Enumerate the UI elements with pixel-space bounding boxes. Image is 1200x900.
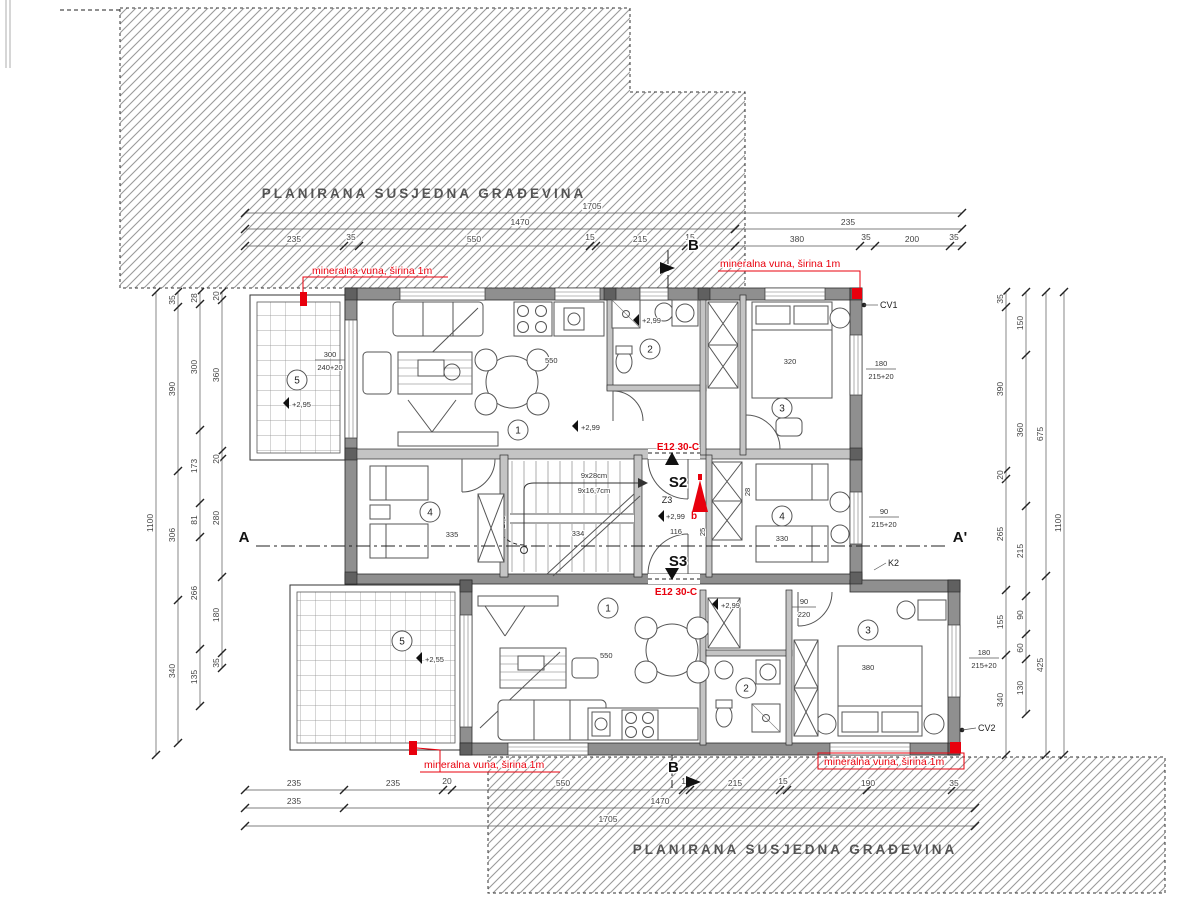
dim-label: 155: [995, 615, 1005, 629]
dim-label: 173: [189, 459, 199, 473]
window-dim: 215+20: [871, 520, 896, 529]
dim-label: 550: [556, 778, 570, 788]
window-dim: 215+20: [868, 372, 893, 381]
dim-label: 35: [211, 658, 221, 668]
terrace-lower: [290, 585, 465, 750]
label-s2: S2: [669, 474, 687, 491]
dim-label: 215: [728, 778, 742, 788]
dim-label: 15: [778, 776, 788, 786]
dim-label: 266: [189, 586, 199, 600]
dim-label: 235: [287, 234, 301, 244]
dim-label: 380: [790, 234, 804, 244]
room-circle-l2: 2: [736, 678, 756, 698]
section-a-right: A': [953, 529, 967, 546]
window-dim-mid-east: 90215+20: [869, 507, 899, 529]
dim-label: 28: [189, 293, 199, 303]
room-number: 2: [743, 684, 749, 695]
room-number: 5: [399, 637, 405, 648]
dim-label: 390: [995, 382, 1005, 396]
room-number: 4: [779, 512, 785, 523]
window-kitchen-upper: [555, 288, 600, 300]
dim-label: 60: [1015, 643, 1025, 653]
property-lines: [6, 0, 122, 68]
dim-label: 81: [189, 515, 199, 525]
neighbor-top-label: PLANIRANA SUSJEDNA GRAĐEVINA: [262, 186, 587, 201]
label-s3: S3: [669, 553, 687, 570]
e12-label-bottom: E12 30-C: [655, 587, 697, 598]
window-dim: 90: [880, 507, 888, 516]
room-number: 1: [605, 604, 611, 615]
dim-label: 130: [1015, 681, 1025, 695]
mineral-note-tr: mineralna vuna, širina 1m: [720, 258, 840, 270]
room-number: 1: [515, 426, 521, 437]
room-circle-u1: 1: [508, 420, 528, 440]
floor-plan-svg: PLANIRANA SUSJEDNA GRAĐEVINA PLANIRANA S…: [0, 0, 1200, 900]
dim-label: 1705: [583, 201, 602, 211]
dim-label: 360: [211, 368, 221, 382]
room-circle-l1: 1: [598, 598, 618, 618]
dim-label: 1470: [651, 796, 670, 806]
e12-label-top: E12 30-C: [657, 442, 699, 453]
level-terrace-low: +2,55: [425, 655, 444, 664]
ref-label: K2: [888, 558, 899, 568]
dim-label: 235: [287, 796, 301, 806]
dim-label: 235: [287, 778, 301, 788]
neighbor-bottom-label: PLANIRANA SUSJEDNA GRAĐEVINA: [633, 842, 958, 857]
level-core: +2,99: [666, 512, 685, 521]
dim-label: 300: [189, 360, 199, 374]
dim-label: 180: [211, 608, 221, 622]
dim-label: 200: [905, 234, 919, 244]
dim-label: 35: [346, 232, 356, 242]
window-dim: 90: [800, 597, 808, 606]
window-living-lower: [508, 743, 588, 755]
core-dim-116: 116: [670, 527, 682, 536]
dim-label: 280: [211, 511, 221, 525]
dim-bed4l: 335: [446, 530, 459, 539]
floor-plan-page: PLANIRANA SUSJEDNA GRAĐEVINA PLANIRANA S…: [0, 0, 1200, 900]
dim-label: 340: [995, 693, 1005, 707]
dim-label: 15: [585, 232, 595, 242]
ref-cv2: CV2: [960, 723, 996, 733]
dim-label: 360: [1015, 423, 1025, 437]
neighbor-building-bottom: PLANIRANA SUSJEDNA GRAĐEVINA: [488, 757, 1165, 893]
window-dim: 240+20: [317, 363, 342, 372]
level-terrace-up: +2,95: [292, 400, 311, 409]
dim-living-up: 550: [545, 356, 558, 365]
shaft-x-core: [712, 462, 742, 540]
ref-k2: K2: [874, 558, 899, 570]
rug-tv-upper: [398, 352, 472, 394]
window-dim-lower-east: 180215+20: [969, 648, 999, 670]
dim-label: 35: [995, 294, 1005, 304]
dim-label: 425: [1035, 658, 1045, 672]
kitchen-lower: [588, 708, 698, 740]
dim-label: 20: [442, 776, 452, 786]
dim-label: 390: [167, 382, 177, 396]
dim-label: 135: [189, 670, 199, 684]
room-circle-u4r: 4: [772, 506, 792, 526]
window-dim: 300: [324, 350, 337, 359]
dim-label: 265: [995, 527, 1005, 541]
dim-label: 215: [1015, 544, 1025, 558]
dim-label: 306: [167, 528, 177, 542]
dim-label: 20: [211, 454, 221, 464]
dim-bed-low: 380: [862, 663, 875, 672]
ref-label: CV2: [978, 723, 996, 733]
section-b-top: B: [688, 237, 699, 254]
window-bedroom3-upper: [765, 288, 825, 300]
dim-label: 35: [167, 295, 177, 305]
extinguisher-label: b: [691, 511, 697, 522]
window-dim: 180: [875, 359, 888, 368]
window-dim: 180: [978, 648, 991, 657]
dim-label: 150: [1015, 316, 1025, 330]
mineral-note-bl: mineralna vuna, širina 1m: [424, 759, 544, 771]
dim-label: 35: [949, 232, 959, 242]
dim-label: 190: [861, 778, 875, 788]
mineral-note-br: mineralna vuna, širina 1m: [824, 756, 944, 768]
core-dim-25: 25: [698, 528, 707, 536]
room-circle-u4l: 4: [420, 502, 440, 522]
stair-note-1: 9x28cm: [581, 471, 607, 480]
mineral-note-tl: mineralna vuna, širina 1m: [312, 265, 432, 277]
dim-label: 1100: [1053, 514, 1063, 533]
room-circle-u5: 5: [287, 370, 307, 390]
dim-label: 215: [633, 234, 647, 244]
dim-label: 235: [386, 778, 400, 788]
rug-tv-lower: [500, 648, 566, 688]
dining-table-upper: [475, 349, 549, 415]
dim-bed4r: 330: [776, 534, 789, 543]
dim-label: 1470: [511, 217, 530, 227]
level-bath-up: +2,99: [642, 316, 661, 325]
dim-label: 35: [861, 232, 871, 242]
room-number: 4: [427, 508, 433, 519]
terrace-door-upper: [345, 320, 357, 438]
window-living-upper: [400, 288, 485, 300]
level-hall-low: +2,99: [721, 601, 740, 610]
kitchen-upper: [514, 302, 604, 336]
level-living-up: +2,99: [581, 423, 600, 432]
window-bedroom4-east: [850, 492, 862, 544]
room-number: 3: [779, 404, 785, 415]
dim-label: 1100: [145, 514, 155, 533]
room-circle-u3: 3: [772, 398, 792, 418]
room-circle-l3: 3: [858, 620, 878, 640]
dining-table-lower: [635, 617, 709, 683]
terrace-door-lower: [460, 615, 472, 727]
window-dim: 215+20: [971, 661, 996, 670]
dim-living-low: 550: [600, 651, 613, 660]
core-dim-28: 28: [743, 488, 752, 496]
dim-label: 675: [1035, 427, 1045, 441]
stair-note-2: 9x16,7cm: [578, 486, 611, 495]
dim-label: 235: [841, 217, 855, 227]
window-bedroom3-lower-east: [948, 625, 960, 697]
dim-label: 20: [211, 291, 221, 301]
section-a-left: A: [239, 529, 250, 546]
ref-cv1: CV1: [862, 300, 898, 310]
dim-bed-up: 320: [784, 357, 797, 366]
room-circle-u2: 2: [640, 339, 660, 359]
room-circle-l5: 5: [392, 631, 412, 651]
dim-label: 340: [167, 664, 177, 678]
shaft-x-upper: [708, 302, 738, 388]
ref-label: CV1: [880, 300, 898, 310]
room-number: 5: [294, 376, 300, 387]
dim-label: 20: [995, 470, 1005, 480]
label-z3: Z3: [662, 495, 673, 505]
window-dim-upper-east: 180215+20: [866, 359, 896, 381]
room-number: 3: [865, 626, 871, 637]
section-b-bottom: B: [668, 759, 679, 776]
dim-label: 1705: [599, 814, 618, 824]
dim-label: 550: [467, 234, 481, 244]
room-number: 2: [647, 345, 653, 356]
dim-label: 35: [949, 778, 959, 788]
window-bedroom3-upper-east: [850, 335, 862, 395]
stair-dim-334: 334: [572, 529, 585, 538]
window-dim: 220: [798, 610, 811, 619]
window-bath-upper: [640, 288, 668, 300]
dim-label: 90: [1015, 610, 1025, 620]
